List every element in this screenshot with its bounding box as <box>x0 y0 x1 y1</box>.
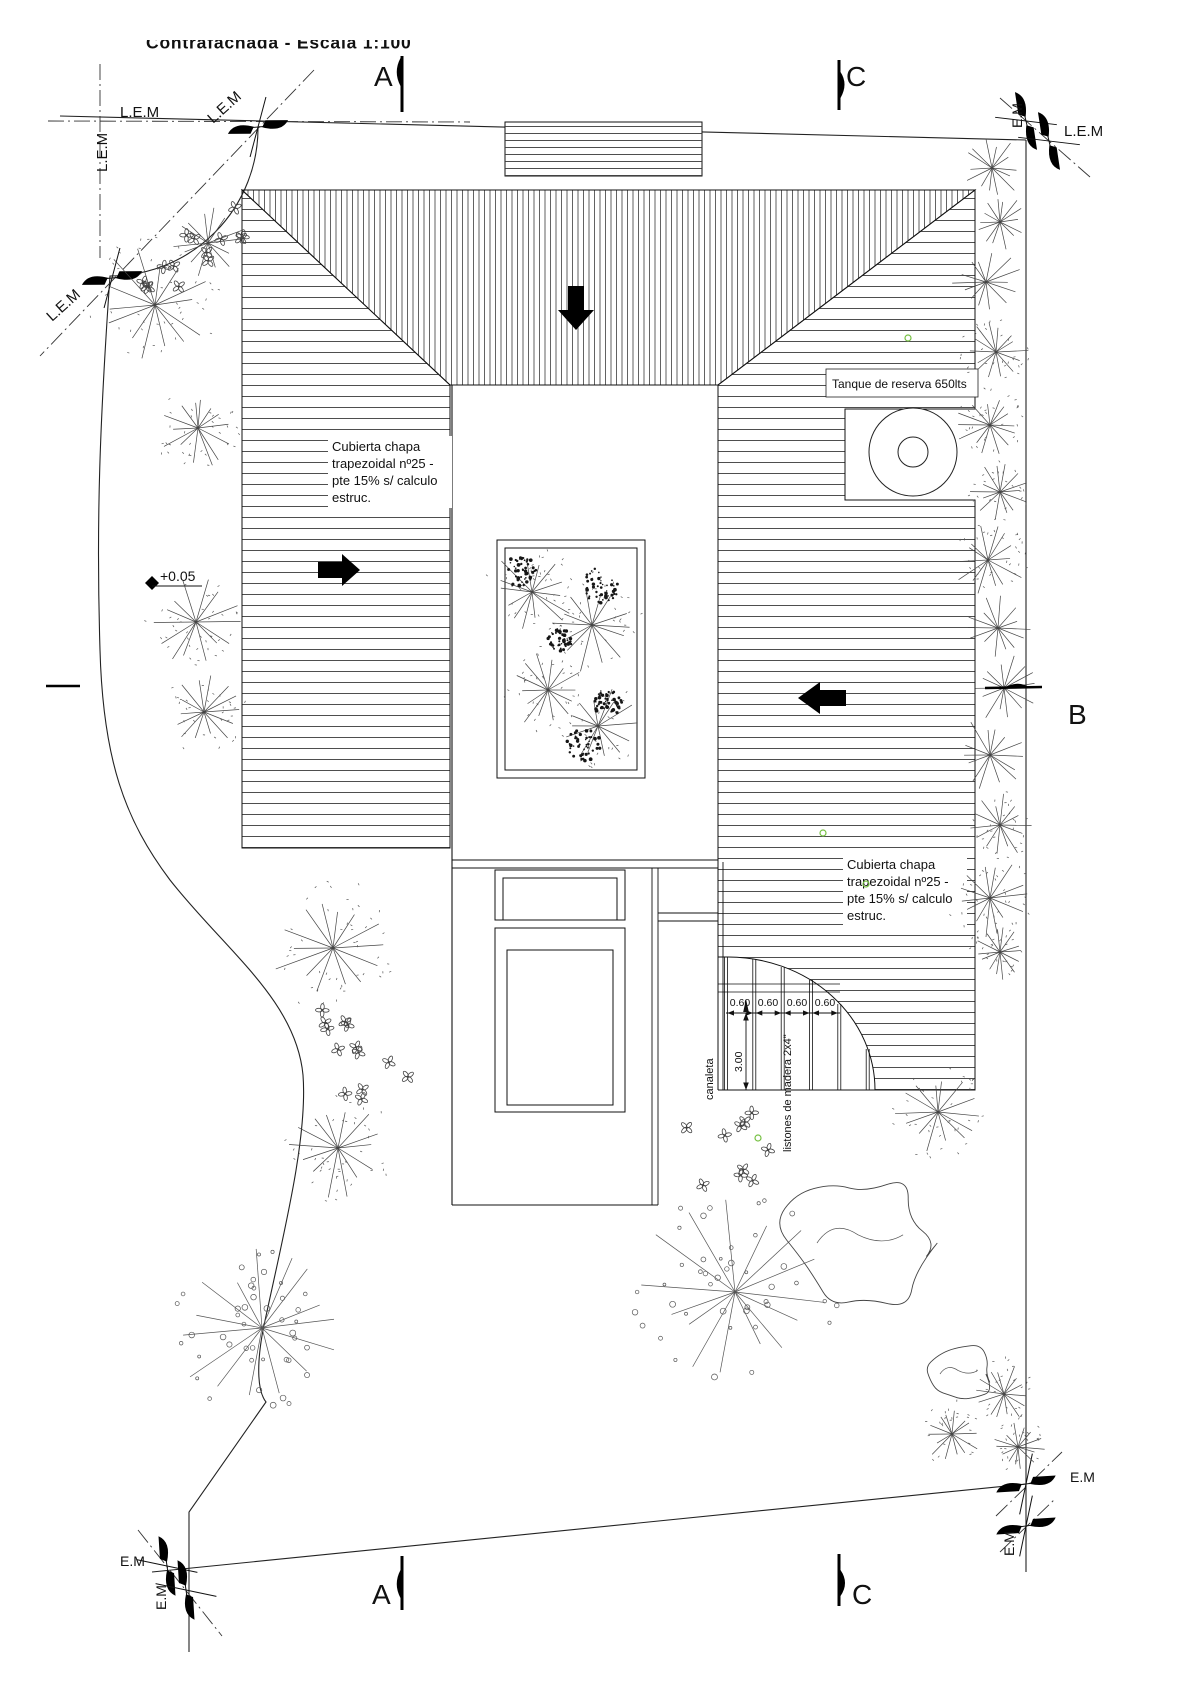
svg-text:C: C <box>852 1579 872 1610</box>
entry-canopy-hatch <box>505 122 702 176</box>
tank-label: Tanque de reserva 650lts <box>832 377 967 391</box>
tank-outer-circle <box>869 408 957 496</box>
dim-060-4: 0.60 <box>815 997 836 1009</box>
svg-text:A: A <box>374 61 393 92</box>
canaleta-label: canaleta <box>704 1058 716 1100</box>
em-label-bottom-right-v: E.M <box>1001 1531 1017 1556</box>
site-plan-page: Contrafachada - Escala 1:100 <box>0 0 1190 1684</box>
em-label-top-right-v: E.M <box>1009 103 1025 128</box>
dim-300: 3.00 <box>733 1051 745 1072</box>
svg-text:A: A <box>372 1579 391 1610</box>
roof-note-right: Cubierta chapa trapezoidal nº25 - pte 15… <box>843 853 967 927</box>
site-plan-drawing: Contrafachada - Escala 1:100 <box>0 0 1190 1684</box>
level-value: +0.05 <box>160 568 196 584</box>
em-label-bottom-right-h: E.M <box>1070 1469 1095 1485</box>
lem-label-top-right-h: L.E.M <box>1064 123 1103 140</box>
listones-label: listones de madera 2x4" <box>782 1034 794 1152</box>
dim-060-1: 0.60 <box>730 997 751 1009</box>
dim-060-3: 0.60 <box>787 997 808 1009</box>
lem-label-top-left-h: L.E.M <box>120 104 159 121</box>
svg-text:B: B <box>1068 699 1087 730</box>
svg-text:C: C <box>846 61 866 92</box>
em-label-bottom-left-h: E.M <box>120 1553 145 1569</box>
dim-060-2: 0.60 <box>758 997 779 1009</box>
em-label-bottom-left-v: E.M <box>153 1585 169 1610</box>
roof-note-left: Cubierta chapa trapezoidal nº25 - pte 15… <box>328 436 452 508</box>
lem-label-top-left-v: L.E.M <box>94 133 111 172</box>
